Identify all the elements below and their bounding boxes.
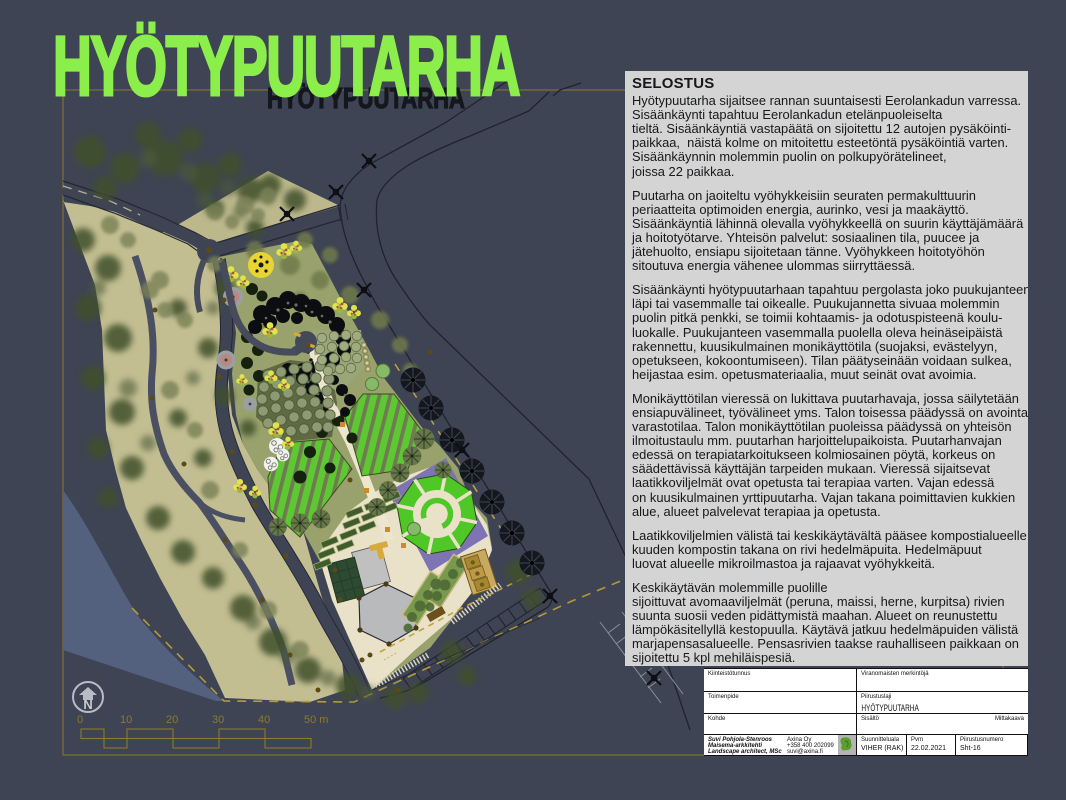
svg-text:50 m: 50 m	[304, 714, 328, 726]
svg-text:N: N	[83, 697, 92, 712]
svg-text:30: 30	[212, 714, 224, 726]
svg-text:0: 0	[77, 714, 83, 726]
svg-text:10: 10	[120, 714, 132, 726]
svg-text:20: 20	[166, 714, 178, 726]
svg-text:40: 40	[258, 714, 270, 726]
